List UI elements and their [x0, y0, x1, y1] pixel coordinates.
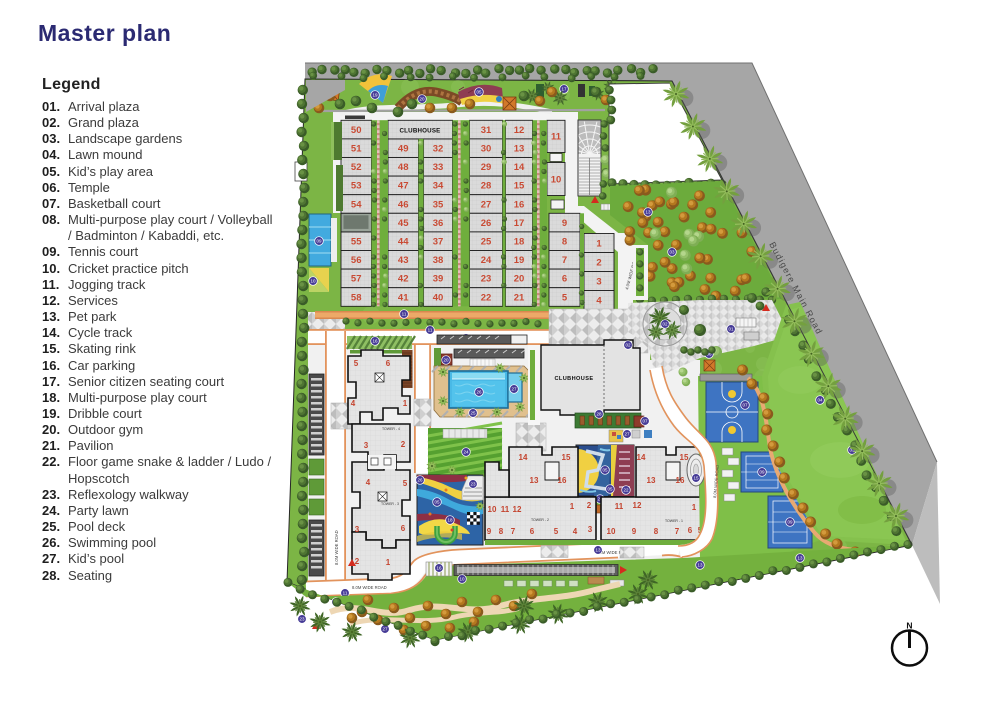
svg-text:44: 44: [398, 237, 409, 248]
svg-text:48: 48: [398, 162, 409, 173]
svg-text:27: 27: [481, 199, 492, 210]
svg-text:21: 21: [514, 292, 525, 303]
svg-text:15: 15: [562, 453, 571, 462]
svg-text:4: 4: [596, 295, 602, 306]
svg-text:14: 14: [519, 453, 528, 462]
svg-text:16: 16: [436, 566, 442, 571]
svg-text:8: 8: [499, 527, 504, 536]
svg-text:36: 36: [433, 218, 444, 229]
svg-text:54: 54: [351, 199, 362, 210]
svg-text:16: 16: [558, 476, 567, 485]
svg-text:6: 6: [562, 274, 567, 285]
svg-text:04: 04: [817, 398, 823, 403]
svg-text:3: 3: [355, 525, 360, 534]
svg-text:58: 58: [351, 292, 362, 303]
svg-text:19: 19: [372, 93, 378, 98]
svg-text:5: 5: [554, 527, 559, 536]
svg-text:11: 11: [402, 312, 407, 317]
svg-text:1: 1: [403, 399, 408, 408]
svg-text:46: 46: [398, 199, 409, 210]
svg-text:11: 11: [501, 505, 510, 514]
svg-text:23: 23: [470, 482, 476, 487]
svg-text:16: 16: [676, 476, 685, 485]
svg-text:14: 14: [514, 162, 525, 173]
svg-text:10: 10: [607, 527, 616, 536]
svg-text:03: 03: [669, 250, 675, 255]
svg-text:1: 1: [596, 238, 602, 249]
svg-text:26: 26: [481, 218, 492, 229]
svg-text:52: 52: [351, 162, 362, 173]
svg-text:6: 6: [688, 526, 693, 535]
svg-text:29: 29: [481, 162, 492, 173]
svg-text:5: 5: [354, 359, 359, 368]
svg-text:41: 41: [398, 292, 409, 303]
svg-text:42: 42: [398, 274, 409, 285]
svg-text:09: 09: [787, 520, 793, 525]
svg-text:1: 1: [570, 502, 575, 511]
svg-text:26: 26: [476, 390, 482, 395]
svg-text:11: 11: [615, 502, 624, 511]
svg-text:2: 2: [401, 440, 406, 449]
svg-text:05: 05: [602, 468, 608, 473]
svg-text:07: 07: [742, 403, 748, 408]
svg-text:05: 05: [434, 500, 440, 505]
svg-text:25: 25: [481, 237, 492, 248]
svg-text:31: 31: [481, 125, 492, 136]
svg-text:15: 15: [514, 181, 525, 192]
svg-text:38: 38: [433, 255, 444, 266]
svg-text:26: 26: [417, 478, 423, 483]
svg-text:20: 20: [514, 274, 525, 285]
svg-text:3: 3: [364, 441, 369, 450]
svg-text:15: 15: [680, 453, 689, 462]
svg-text:1: 1: [692, 503, 697, 512]
svg-text:20: 20: [419, 97, 425, 102]
svg-text:11: 11: [551, 132, 562, 143]
svg-text:01: 01: [728, 327, 734, 332]
svg-text:2: 2: [355, 557, 360, 566]
svg-text:2: 2: [596, 257, 601, 268]
svg-text:TOWER - 2: TOWER - 2: [531, 518, 549, 522]
svg-text:49: 49: [398, 144, 409, 155]
svg-text:11: 11: [343, 591, 348, 596]
svg-text:7: 7: [511, 527, 516, 536]
svg-text:55: 55: [351, 237, 362, 248]
svg-text:7: 7: [562, 255, 567, 266]
svg-text:37: 37: [433, 237, 444, 248]
svg-text:35: 35: [433, 199, 444, 210]
svg-text:40: 40: [433, 292, 444, 303]
svg-text:CLUBHOUSE: CLUBHOUSE: [554, 376, 593, 382]
svg-text:8: 8: [654, 527, 659, 536]
svg-text:18: 18: [514, 237, 525, 248]
svg-text:TOWER - 1: TOWER - 1: [665, 519, 683, 523]
svg-text:8: 8: [562, 237, 567, 248]
svg-text:9: 9: [487, 527, 492, 536]
svg-text:13: 13: [595, 548, 601, 553]
svg-text:32: 32: [433, 144, 444, 155]
svg-text:18: 18: [447, 518, 453, 523]
svg-text:27: 27: [382, 627, 388, 632]
svg-text:20: 20: [443, 358, 449, 363]
svg-text:53: 53: [351, 181, 362, 192]
svg-text:09: 09: [759, 470, 765, 475]
svg-text:57: 57: [351, 274, 362, 285]
svg-text:2: 2: [587, 501, 592, 510]
svg-text:30: 30: [481, 144, 492, 155]
svg-text:13: 13: [697, 563, 703, 568]
svg-text:28: 28: [481, 181, 492, 192]
svg-text:24: 24: [481, 255, 492, 266]
svg-text:TOWER - 3: TOWER - 3: [381, 502, 399, 506]
svg-text:24: 24: [463, 450, 469, 455]
svg-text:13: 13: [647, 476, 656, 485]
svg-text:TOWER - 4: TOWER - 4: [382, 427, 400, 431]
svg-text:N: N: [906, 621, 912, 631]
svg-text:13: 13: [797, 556, 803, 561]
svg-text:27: 27: [624, 432, 630, 437]
svg-text:10: 10: [310, 279, 316, 284]
svg-text:12: 12: [633, 501, 642, 510]
svg-text:02: 02: [662, 322, 668, 327]
svg-text:56: 56: [351, 255, 362, 266]
svg-text:9: 9: [562, 218, 567, 229]
svg-text:23: 23: [481, 274, 492, 285]
svg-text:6: 6: [401, 524, 406, 533]
svg-text:16: 16: [372, 339, 378, 344]
svg-text:43: 43: [398, 255, 409, 266]
svg-text:27: 27: [511, 387, 517, 392]
svg-text:9: 9: [632, 527, 637, 536]
svg-text:51: 51: [351, 144, 362, 155]
svg-text:4: 4: [366, 478, 371, 487]
svg-text:05: 05: [607, 487, 613, 492]
svg-text:5: 5: [562, 292, 568, 303]
svg-text:25: 25: [470, 411, 476, 416]
svg-text:CLUBHOUSE: CLUBHOUSE: [400, 128, 441, 135]
svg-text:13: 13: [645, 210, 651, 215]
svg-text:3: 3: [596, 276, 601, 287]
svg-text:8.0M WIDE ROAD: 8.0M WIDE ROAD: [352, 585, 387, 590]
svg-text:22: 22: [623, 488, 629, 493]
svg-text:5: 5: [403, 479, 408, 488]
svg-text:10: 10: [551, 174, 562, 185]
svg-text:34: 34: [433, 181, 444, 192]
svg-text:16: 16: [514, 199, 525, 210]
svg-text:12: 12: [514, 125, 525, 136]
svg-text:19: 19: [514, 255, 525, 266]
svg-text:8.0M WIDE ROAD: 8.0M WIDE ROAD: [334, 530, 339, 565]
svg-text:4: 4: [573, 527, 578, 536]
svg-text:6: 6: [530, 527, 535, 536]
svg-text:45: 45: [398, 218, 409, 229]
svg-text:47: 47: [398, 181, 409, 192]
svg-text:7: 7: [675, 527, 680, 536]
svg-text:3: 3: [588, 525, 593, 534]
svg-text:13: 13: [530, 476, 539, 485]
svg-text:10: 10: [488, 505, 497, 514]
svg-text:05: 05: [476, 90, 482, 95]
svg-text:23: 23: [299, 617, 305, 622]
svg-text:22: 22: [481, 292, 492, 303]
svg-text:4: 4: [351, 399, 356, 408]
svg-text:14: 14: [637, 453, 646, 462]
svg-text:09: 09: [316, 239, 322, 244]
svg-text:10: 10: [459, 577, 465, 582]
svg-text:6: 6: [386, 359, 391, 368]
svg-text:15: 15: [693, 476, 699, 481]
svg-text:13: 13: [514, 144, 525, 155]
svg-text:12: 12: [513, 505, 522, 514]
svg-text:50: 50: [351, 125, 362, 136]
svg-text:33: 33: [433, 162, 444, 173]
svg-text:39: 39: [433, 274, 444, 285]
svg-text:11: 11: [428, 328, 433, 333]
svg-text:02: 02: [625, 343, 631, 348]
svg-text:07: 07: [642, 419, 648, 424]
svg-text:17: 17: [514, 218, 525, 229]
svg-text:28: 28: [596, 412, 602, 417]
svg-text:1: 1: [386, 558, 391, 567]
